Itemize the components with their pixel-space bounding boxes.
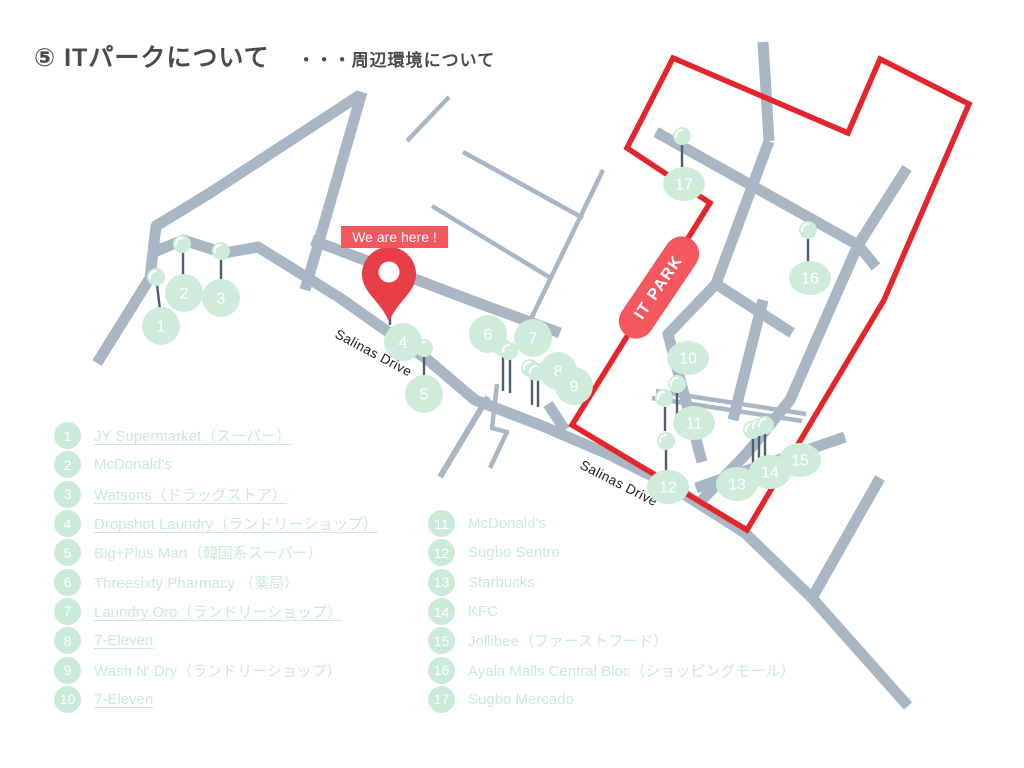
map-marker-11: 11 [673,406,715,440]
legend-number-badge: 11 [428,510,455,537]
map-marker-7: 7 [514,319,552,357]
legend-item-14: 14KFC [428,597,795,626]
legend-item-label[interactable]: 7-Eleven [94,632,153,649]
marker-number: 12 [659,480,677,497]
legend-number-badge: 9 [54,657,81,684]
legend-item-15: 15Jollibee（ファーストフード） [428,626,795,655]
legend-number-badge: 2 [54,451,81,478]
legend-left-column: 1JY Supermarket（スーパー）2McDonald's3Watsons… [54,421,378,714]
map-marker-15: 15 [779,443,821,477]
legend-item-12: 12Sugbo Sentro [428,538,795,567]
legend-item-label[interactable]: Watsons（ドラッグストア） [94,484,287,505]
map-marker-9: 9 [555,367,593,405]
we-are-here-label: We are here ! [341,226,448,248]
legend-item-3: 3Watsons（ドラッグストア） [54,480,378,509]
legend-item-7: 7Laundry Oro（ランドリーショップ） [54,597,378,626]
marker-number: 11 [686,416,703,433]
legend-item-label: McDonald's [468,515,546,532]
legend-item-16: 16Ayala Malls Central Bloc（ショッピングモール） [428,655,795,684]
marker-number: 7 [529,331,538,348]
we-are-here-pin [362,247,416,322]
legend-number-badge: 10 [54,686,81,713]
legend-number-badge: 12 [428,539,455,566]
legend-item-2: 2McDonald's [54,450,378,479]
map-marker-5: 5 [405,375,443,413]
map-marker-3: 3 [202,279,240,317]
legend-number-badge: 15 [428,627,455,654]
map-marker-12: 12 [647,470,689,504]
legend-item-11: 11McDonald's [428,509,795,538]
legend-item-10: 107-Eleven [54,685,378,714]
marker-number: 6 [484,327,493,344]
marker-number: 13 [728,477,746,494]
legend-item-label: Sugbo Mercado [468,691,574,708]
legend-item-label: Wash N' Dry（ランドリーショップ） [94,660,342,681]
marker-number: 3 [217,291,226,308]
marker-number: 1 [157,319,166,336]
marker-number: 5 [420,387,429,404]
legend-item-label: Jollibee（ファーストフード） [468,630,668,651]
map-marker-4: 4 [384,323,422,361]
marker-number: 9 [570,379,579,396]
legend-item-label[interactable]: Dropshot Laundry（ランドリーショップ） [94,513,378,534]
legend-number-badge: 8 [54,627,81,654]
marker-number: 16 [801,271,819,288]
map-marker-10: 10 [667,341,709,375]
legend-item-1: 1JY Supermarket（スーパー） [54,421,378,450]
marker-number: 2 [180,286,189,303]
legend-item-label: Threesixty Pharmacy （薬局） [94,572,299,593]
marker-stem [157,284,160,310]
legend-item-label[interactable]: Laundry Oro（ランドリーショップ） [94,601,342,622]
legend-item-label: KFC [468,603,498,620]
map-marker-16: 16 [789,261,831,295]
marker-number: 14 [761,465,779,482]
legend-number-badge: 3 [54,481,81,508]
legend-number-badge: 14 [428,598,455,625]
legend-item-17: 17Sugbo Mercado [428,685,795,714]
legend-item-5: 5Big+Plus Mart（韓国系スーパー） [54,538,378,567]
pin-hole [379,262,400,283]
legend-item-label: McDonald's [94,456,172,473]
legend-number-badge: 5 [54,539,81,566]
marker-number: 17 [675,177,693,194]
legend-item-9: 9Wash N' Dry（ランドリーショップ） [54,655,378,684]
map-marker-2: 2 [165,274,203,312]
marker-number: 10 [679,351,697,368]
legend-number-badge: 17 [428,686,455,713]
legend-item-label: Starbucks [468,574,535,591]
legend-right-column: 11McDonald's12Sugbo Sentro13Starbucks14K… [428,509,795,714]
legend-item-label: Ayala Malls Central Bloc（ショッピングモール） [468,660,795,681]
legend-item-4: 4Dropshot Laundry（ランドリーショップ） [54,509,378,538]
marker-number: 15 [791,453,809,470]
map-marker-6: 6 [469,315,507,353]
legend-number-badge: 6 [54,569,81,596]
legend-number-badge: 7 [54,598,81,625]
legend-item-6: 6Threesixty Pharmacy （薬局） [54,567,378,596]
legend-item-13: 13Starbucks [428,568,795,597]
marker-number: 4 [399,335,408,352]
legend-item-8: 87-Eleven [54,626,378,655]
legend-number-badge: 16 [428,657,455,684]
slide: ⑤ ITパークについて ・・・周辺環境について [0,0,1024,768]
legend-item-label: Sugbo Sentro [468,544,560,561]
legend-item-label[interactable]: 7-Eleven [94,691,153,708]
map-marker-1: 1 [142,307,180,345]
legend-item-label: Big+Plus Mart（韓国系スーパー） [94,542,323,563]
legend-number-badge: 13 [428,569,455,596]
legend-number-badge: 1 [54,422,81,449]
legend-number-badge: 4 [54,510,81,537]
map-marker-17: 17 [663,167,705,201]
legend-item-label[interactable]: JY Supermarket（スーパー） [94,425,291,446]
